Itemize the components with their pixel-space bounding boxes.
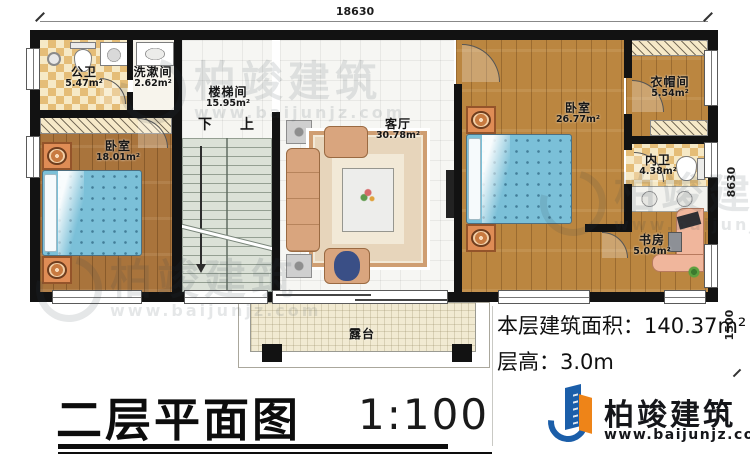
wall-interior [172,112,182,292]
wall-interior [632,136,708,144]
armchair [324,126,368,158]
room-label-bedroom-left: 卧室 18.01m² [86,140,150,164]
info-floor-area-label: 本层建筑面积： [497,314,644,338]
wall-interior [454,84,462,292]
room-label-living-room: 客厅 30.78m² [366,118,430,142]
window [704,142,718,178]
bed-blanket-fold [482,135,510,223]
nightstand [466,106,496,134]
info-floor-height: 层高：3.0m [497,346,614,376]
wall-interior [127,92,133,112]
window [52,290,142,304]
bed [42,170,142,256]
closet-cloakroom-mid [650,120,708,136]
window [704,244,718,288]
window [184,290,268,304]
room-area: 5.47m² [52,79,116,90]
side-table [286,254,312,278]
brand-logo-icon [548,386,598,446]
wall-interior [585,224,630,232]
plant-icon [688,266,700,278]
dimension-top: 18630 [310,5,400,18]
info-floor-height-value: 3.0m [560,350,614,374]
bed-pillow [44,174,57,252]
room-label-terrace: 露台 [338,328,386,341]
page-title: 二层平面图 [56,384,301,450]
floor-plan-canvas: 下 上 公卫 5.47m² 洗漱间 2.62m² [0,0,750,458]
sofa [286,148,320,252]
room-area: 18.01m² [86,153,150,164]
wall-top [30,30,718,40]
terrace-sliding-door [272,290,448,304]
coffee-table [342,168,394,232]
wall-interior [624,40,632,78]
room-area: 4.38m² [628,167,688,178]
room-label-stairwell: 楼梯间 15.95m² [190,86,266,110]
washroom-sink [136,42,174,66]
title-underline-thin [58,452,492,454]
layout-guide-line [492,306,493,446]
tv [446,170,454,218]
room-label-public-bath: 公卫 5.47m² [52,66,116,90]
room-name: 露台 [338,328,386,341]
info-floor-area-value: 140.37m² [644,314,746,338]
window [26,48,40,90]
stair-label-up: 上 [240,114,254,134]
washer-icon [100,42,128,66]
info-floor-height-label: 层高： [497,350,560,374]
room-label-study: 书房 5.04m² [620,234,684,258]
room-area: 5.54m² [636,89,704,100]
room-area: 30.78m² [366,131,430,142]
room-label-bedroom-master: 卧室 26.77m² [546,102,610,126]
toilet-tank [70,42,96,49]
info-floor-area: 本层建筑面积：140.37m² [497,310,746,340]
nightstand [42,256,72,284]
drawing-scale: 1:100 [358,390,489,439]
room-area: 5.04m² [620,247,684,258]
room-area: 15.95m² [190,99,266,110]
room-label-cloakroom: 衣帽间 5.54m² [636,76,704,100]
window [498,290,590,304]
wall-interior [40,110,182,118]
window [26,136,40,178]
stair-arrowhead-icon [196,264,206,278]
stair-label-down: 下 [198,114,212,134]
room-label-ensuite-bath: 内卫 4.38m² [628,154,688,178]
nightstand [466,224,496,252]
room-area: 2.62m² [125,79,181,90]
terrace-column [452,344,472,362]
wall-interior [624,114,632,150]
title-underline-thick [58,444,448,449]
nightstand [42,142,72,170]
window [704,50,718,106]
window [664,290,706,304]
dimension-right: 8630 [725,160,739,204]
room-label-washroom: 洗漱间 2.62m² [125,66,181,90]
bed-pillow [468,138,481,220]
terrace-column [262,344,282,362]
closet-cloakroom-top [626,40,708,56]
logo-building-orange-icon [579,394,592,434]
shower-head-icon [47,52,61,66]
dimension-tick [703,12,713,22]
bed-blanket-fold [58,171,84,255]
dimension-tick [733,369,741,377]
room-area: 26.77m² [546,115,610,126]
person-figure [334,251,360,281]
brand-url: www.baijunjz.com [604,427,750,443]
wall-interior [272,112,280,292]
stair-direction-arrow [200,146,202,264]
dimension-line-top [40,21,708,22]
